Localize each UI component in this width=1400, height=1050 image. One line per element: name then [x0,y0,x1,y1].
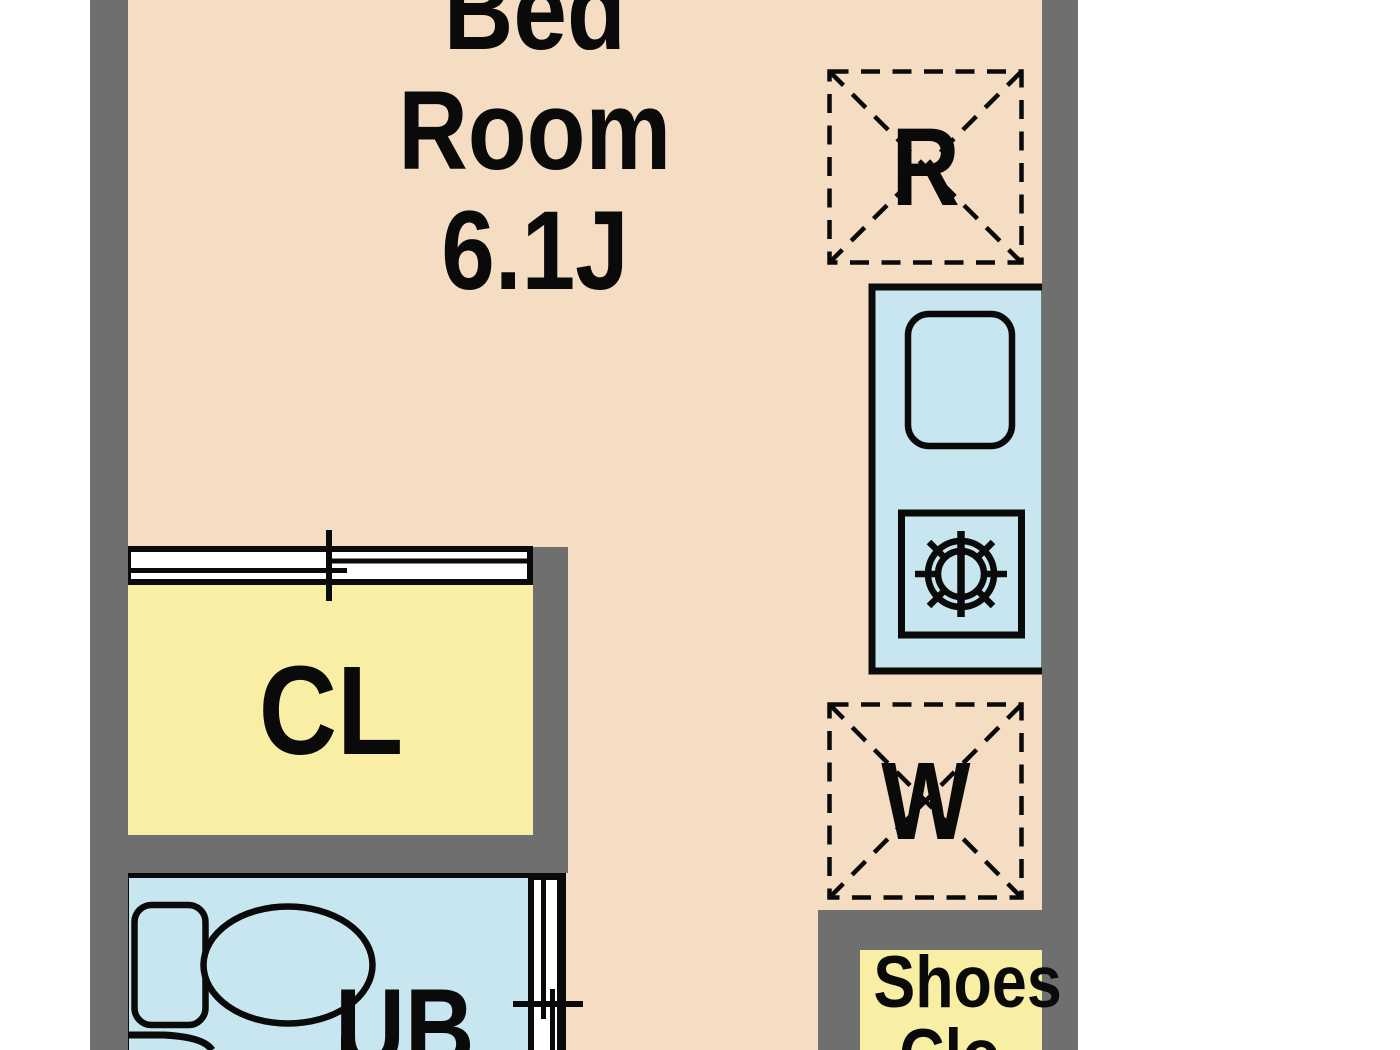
closet-label: CL [128,585,533,835]
wall-closet-bottom [90,835,568,873]
shoes-closet-label-line2: Clo [899,1019,1000,1050]
wall-left [90,0,128,1050]
bedroom-label-line2: Room [399,71,672,191]
floorplan-canvas: Bed Room 6.1J R W CL UB Shoes Clo [0,0,1400,1050]
wall-right [1042,0,1078,1050]
shoes-closet-label: Shoes Clo [858,946,1042,1050]
bedroom-label-line3: 6.1J [441,191,628,311]
wall-closet-right [533,547,568,873]
bedroom-label-line1: Bed [444,0,626,71]
washer-space-label: W [829,704,1022,898]
unit-bath-label: UB [240,973,570,1050]
bedroom-label: Bed Room 6.1J [235,0,835,311]
shoes-closet-label-line1: Shoes [873,946,1061,1019]
refrigerator-space-label: R [829,71,1022,263]
